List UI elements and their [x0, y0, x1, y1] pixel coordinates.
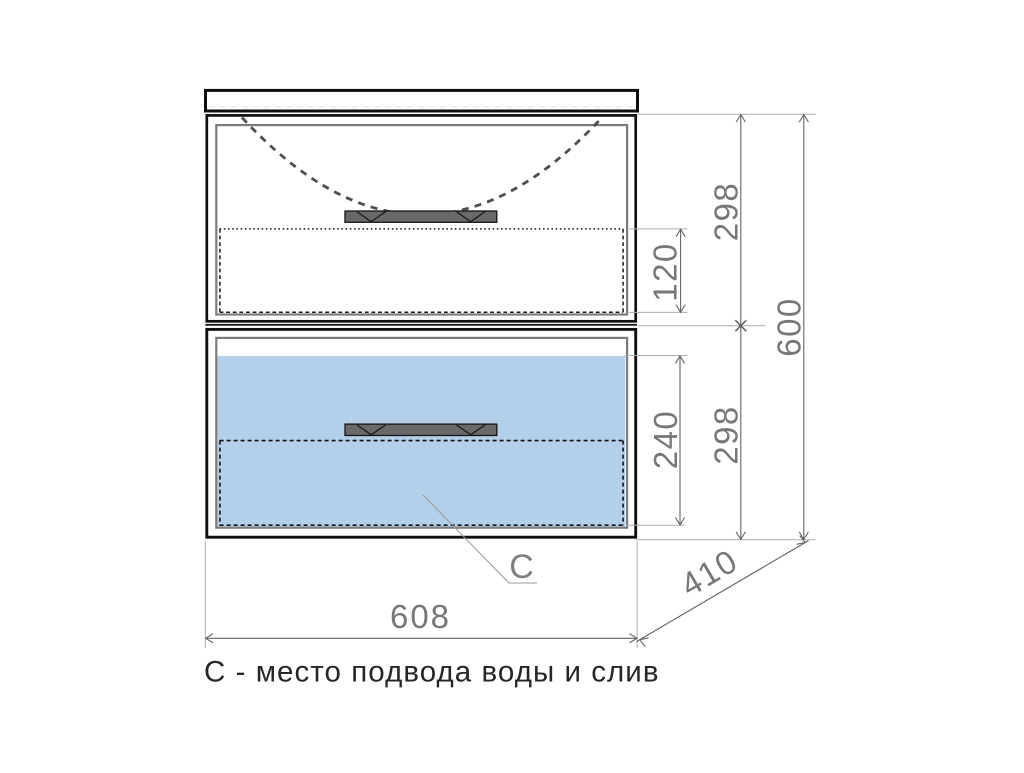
svg-text:С - место подвода воды и слив: С - место подвода воды и слив	[204, 656, 660, 689]
svg-text:600: 600	[771, 297, 808, 357]
svg-text:C: C	[509, 548, 534, 586]
svg-text:120: 120	[647, 242, 684, 302]
svg-text:298: 298	[708, 405, 745, 465]
svg-text:240: 240	[647, 410, 684, 470]
svg-text:298: 298	[708, 182, 745, 242]
svg-text:608: 608	[390, 598, 451, 635]
